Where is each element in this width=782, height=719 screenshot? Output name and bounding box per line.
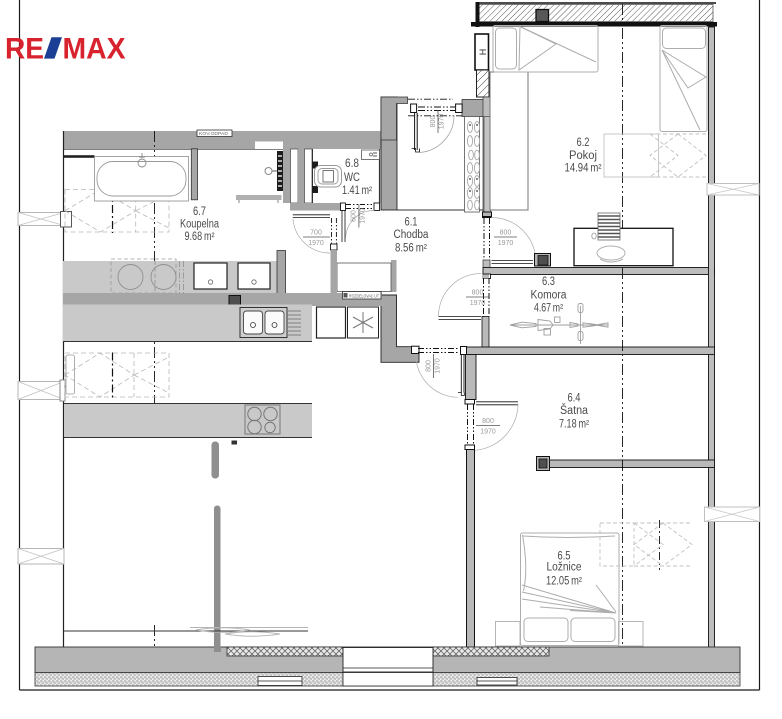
svg-text:KOV.ODPAD: KOV.ODPAD — [199, 131, 229, 136]
svg-text:6.3: 6.3 — [542, 276, 555, 288]
svg-text:9.68 m²: 9.68 m² — [185, 231, 215, 243]
svg-text:Ložnice: Ložnice — [547, 562, 582, 574]
svg-text:Chodba: Chodba — [394, 229, 430, 241]
svg-text:600: 600 — [351, 210, 358, 222]
svg-text:1970: 1970 — [439, 114, 446, 130]
svg-text:12.05 m²: 12.05 m² — [546, 576, 582, 588]
svg-text:1970: 1970 — [470, 300, 486, 307]
svg-text:8.56 m²: 8.56 m² — [395, 243, 427, 255]
svg-text:Pokoj: Pokoj — [569, 150, 597, 162]
svg-text:ROZDELOVAC UT: ROZDELOVAC UT — [349, 294, 379, 299]
svg-text:800: 800 — [430, 116, 437, 128]
svg-text:Komora: Komora — [531, 290, 568, 302]
svg-text:6.2: 6.2 — [577, 137, 590, 149]
svg-text:MAX: MAX — [63, 33, 126, 66]
svg-text:14.94 m²: 14.94 m² — [565, 163, 602, 175]
svg-text:Koupelna: Koupelna — [180, 219, 219, 231]
svg-text:1970: 1970 — [308, 240, 324, 247]
svg-text:700: 700 — [310, 230, 322, 237]
svg-text:1970: 1970 — [480, 429, 496, 436]
svg-text:1.41 m²: 1.41 m² — [342, 185, 372, 197]
svg-text:800: 800 — [482, 418, 494, 425]
svg-text:6.4: 6.4 — [568, 393, 581, 405]
svg-text:7.18 m²: 7.18 m² — [559, 419, 589, 431]
svg-text:Šatna: Šatna — [560, 404, 589, 417]
svg-text:6.1: 6.1 — [405, 217, 418, 229]
svg-text:1970: 1970 — [360, 208, 367, 224]
svg-text:800: 800 — [472, 290, 484, 297]
svg-text:RE: RE — [5, 33, 44, 66]
svg-text:1970: 1970 — [498, 240, 514, 247]
svg-text:H: H — [478, 49, 488, 56]
svg-text:800: 800 — [500, 230, 512, 237]
svg-text:4.67 m²: 4.67 m² — [534, 303, 563, 315]
svg-text:WC: WC — [344, 172, 360, 184]
svg-text:6.7: 6.7 — [193, 206, 206, 218]
svg-text:1970: 1970 — [435, 358, 442, 374]
svg-text:6.8: 6.8 — [345, 158, 359, 170]
svg-text:800: 800 — [426, 360, 433, 372]
